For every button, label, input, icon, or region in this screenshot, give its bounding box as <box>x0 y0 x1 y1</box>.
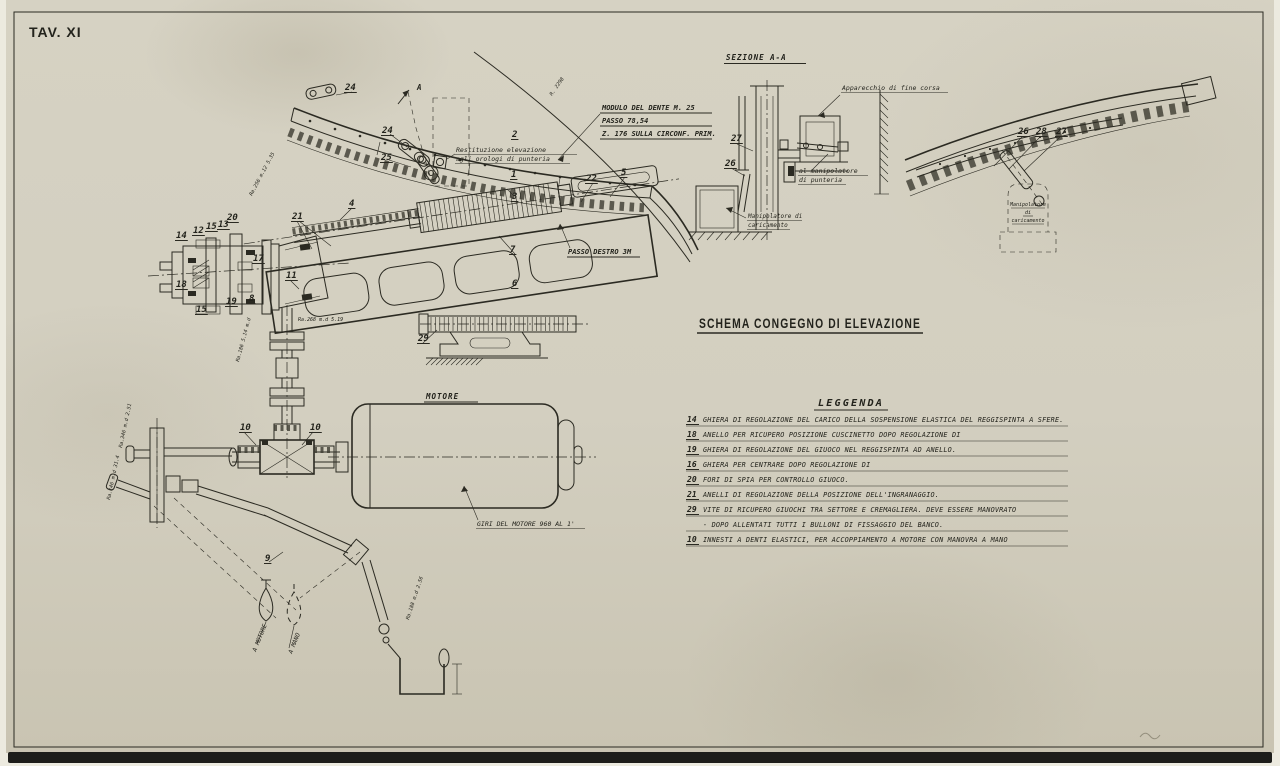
part-callout: 2 <box>511 130 517 140</box>
legend-item-text: ANELLO PER RICUPERO POSIZIONE CUSCINETTO… <box>702 431 961 439</box>
legend-item-text: INNESTI A DENTI ELASTICI, PER ACCOPPIAME… <box>703 536 1008 544</box>
note-passo: PASSO 78,54 <box>602 117 648 125</box>
part-callout: 1 <box>511 170 516 180</box>
part-callout: 17 <box>253 254 264 264</box>
part-callout: 28 <box>1035 127 1047 137</box>
note-z: Z. 176 SULLA CIRCONF. PRIM. <box>601 130 716 138</box>
section-title: SEZIONE A-A <box>726 53 787 62</box>
legend-layer: 14GHIERA DI REGOLAZIONE DEL CARICO DELLA… <box>686 415 1068 546</box>
legend-item-text: - DOPO ALLENTATI TUTTI I BULLONI DI FISS… <box>703 521 943 529</box>
technical-drawing: TAV. XI <box>0 0 1280 766</box>
electric-motor: MOTORE GIRI DEL MOTORE 960 AL 1' <box>328 392 596 529</box>
loading-manipulator-label-2: caricamento <box>748 222 788 229</box>
part-callout: 21 <box>291 212 303 222</box>
note-radius: R. 2298 <box>549 76 566 97</box>
part-callout: 15 <box>196 305 207 315</box>
gear-notes: MODULO DEL DENTE M. 25 PASSO 78,54 Z. 17… <box>549 76 716 162</box>
selector-handles: A MOTORE A MANO <box>251 580 302 656</box>
legend-item-number: 16 <box>687 460 697 469</box>
rack-sector-detail: Manipolatore di caricamento <box>905 76 1216 252</box>
pointing-manipulator-label-2: di punteria <box>799 176 842 184</box>
recovery-screw-assembly <box>419 314 590 365</box>
handle-hand-label: A MANO <box>287 632 302 656</box>
part-callout: 24 <box>344 83 356 93</box>
loading-manipulator-right-1: Manipolatore <box>1009 202 1046 208</box>
part-callout: 19 <box>226 297 237 307</box>
part-callout: 15 <box>206 222 217 232</box>
legend-item-text: GHIERA DI REGOLAZIONE DEL CARICO DELLA S… <box>703 416 1064 424</box>
legend-item-number: 21 <box>686 490 697 499</box>
loading-manipulator-label-1: Manipolatore di <box>747 213 802 220</box>
legend-item-number: 20 <box>686 475 697 484</box>
legend-item-text: GHIERA PER CENTRARE DOPO REGOLAZIONE DI <box>703 461 870 469</box>
drawing-sheet: TAV. XI <box>0 0 1280 766</box>
bearing-ref: Ra.186 5.14 m.d <box>235 316 253 362</box>
legend-item-text: ANELLI DI REGOLAZIONE DELLA POSIZIONE DE… <box>702 491 939 499</box>
handle-motor-label: A MOTORE <box>251 623 269 654</box>
loading-manipulator-right-3: caricamento <box>1011 218 1044 224</box>
sheet-number: TAV. XI <box>29 24 82 40</box>
legend-block: LEGGENDA 14GHIERA DI REGOLAZIONE DEL CAR… <box>686 398 1068 546</box>
part-callout: 27 <box>730 134 742 144</box>
part-callout: 26 <box>1017 127 1029 137</box>
bearing-ref: Ra.256 m.12 5.35 <box>248 152 276 197</box>
bearing-ref: Ra.268 m.d 5.19 <box>298 317 343 323</box>
legend-item-number: 19 <box>687 445 697 454</box>
loading-manipulator-right-2: di <box>1025 210 1031 216</box>
page-title: SCHEMA CONGEGNO DI ELEVAZIONE <box>699 315 921 331</box>
part-callout: 5 <box>621 168 627 178</box>
part-callout: 3 <box>511 192 517 202</box>
restituzione-note: Restituzione elevazione agli orologi di … <box>447 146 577 164</box>
part-callout: 29 <box>417 334 429 344</box>
part-callout: 8 <box>249 294 254 304</box>
pointing-manipulator-label-1: al manipolatore <box>799 167 858 175</box>
part-callout: 4 <box>349 199 354 209</box>
part-callout: 14 <box>176 231 187 241</box>
part-callout: 25 <box>380 153 392 163</box>
motor-speed-label: GIRI DEL MOTORE 960 AL 1' <box>477 520 575 528</box>
section-a-a-detail: SEZIONE A-A <box>688 53 948 240</box>
restituzione-line2: agli orologi di punteria <box>456 155 550 163</box>
legend-item-number: 14 <box>687 415 697 424</box>
part-callout: 24 <box>381 126 393 136</box>
legend-item-text: VITE DI RICUPERO GIUOCHI TRA SETTORE E C… <box>703 506 1016 514</box>
limit-switch-label: Apparecchio di fine corsa <box>841 84 940 92</box>
legend-heading: LEGGENDA <box>818 398 884 409</box>
hand-crank-linkage <box>264 508 462 694</box>
part-callout: 10 <box>310 423 321 433</box>
pencil-mark <box>1140 733 1160 739</box>
legend-item-text: GHIERA DI REGOLAZIONE DEL GIUOCO NEL REG… <box>703 446 956 454</box>
part-callout: 9 <box>265 554 270 564</box>
passo-destro-label: PASSO DESTRO 3M <box>568 248 632 256</box>
legend-item-number: 18 <box>687 430 697 439</box>
part-callout: 20 <box>226 213 238 223</box>
note-module: MODULO DEL DENTE M. 25 <box>601 104 695 112</box>
motor-label: MOTORE <box>425 392 459 401</box>
bearing-ref: Ra.346 m.d 2.51 <box>118 403 133 448</box>
drawing-title-block: SCHEMA CONGEGNO DI ELEVAZIONE <box>697 315 923 333</box>
bearing-ref: Ra.146 m.d 31.4 <box>106 455 121 500</box>
legend-item-number: 10 <box>687 535 697 544</box>
part-callout: 7 <box>510 245 516 255</box>
section-arrow-label: A <box>416 83 423 92</box>
legend-item-number: 29 <box>686 505 697 514</box>
restituzione-line1: Restituzione elevazione <box>456 146 546 154</box>
legend-item-text: FORI DI SPIA PER CONTROLLO GIUOCO. <box>703 476 849 484</box>
handwheel-assembly <box>106 418 296 618</box>
part-callout: 11 <box>286 271 297 281</box>
part-callout: 26 <box>724 159 736 169</box>
part-callout: 6 <box>512 279 518 289</box>
part-callout: 27 <box>1055 127 1067 137</box>
part-callout: 18 <box>176 280 187 290</box>
part-callout: 12 <box>193 226 204 236</box>
part-callout: 10 <box>240 423 251 433</box>
bearing-ref: Ra.188 m.d 2.56 <box>405 576 425 621</box>
part-callout: 22 <box>585 174 597 184</box>
